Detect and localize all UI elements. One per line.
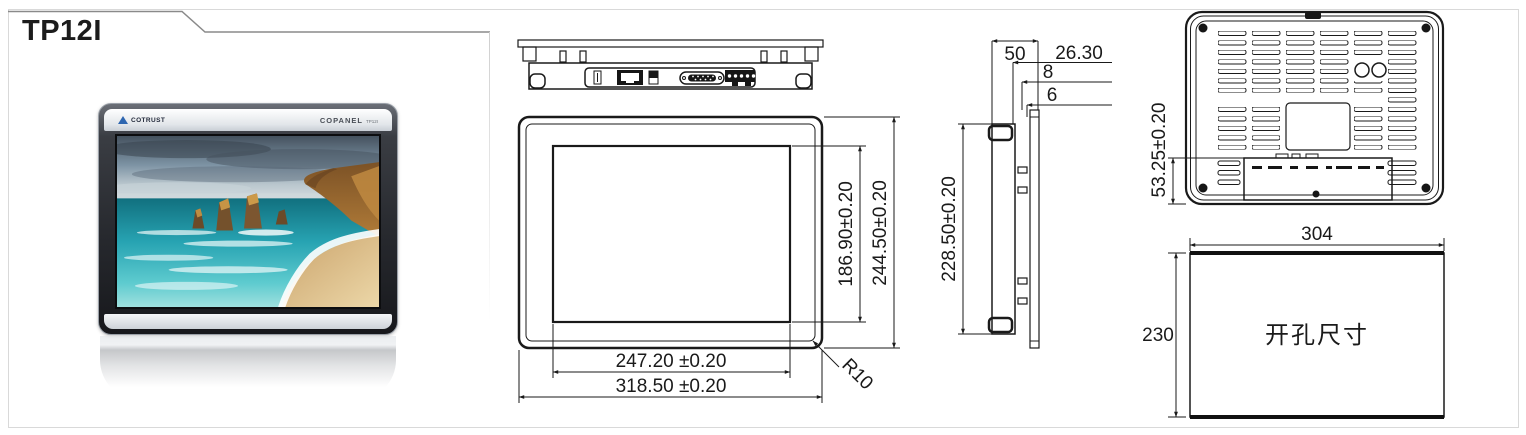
screen-landscape-image [117, 136, 379, 307]
dim-offset-b: 8 [1022, 62, 1112, 110]
brand-logo: COTRUST [118, 116, 165, 124]
cutout-label: 开孔尺寸 [1265, 322, 1369, 349]
model-name: TP12I [366, 119, 378, 124]
svg-text:R10: R10 [837, 355, 876, 394]
product-photo: COTRUST COPANELTP12I [98, 103, 398, 335]
serial-port-icon [680, 72, 724, 84]
dim-screen-width: 247.20 ±0.20 [553, 324, 790, 378]
svg-text:53.25±0.20: 53.25±0.20 [1149, 103, 1170, 198]
svg-text:50: 50 [1004, 44, 1025, 65]
device-bottom-bezel [104, 314, 392, 329]
side-view-drawing: 50 26.30 8 6 228.50±0.20 [930, 30, 1120, 360]
datasheet-page: TP12I COTRUST COPANELTP12I [0, 0, 1526, 435]
corner-screw-icon [1199, 184, 1208, 193]
label-plate [1286, 103, 1350, 150]
svg-text:247.20 ±0.20: 247.20 ±0.20 [616, 351, 727, 372]
dim-side-height: 228.50±0.20 [939, 124, 992, 334]
section-divider [489, 32, 490, 322]
svg-text:26.30: 26.30 [1055, 43, 1103, 64]
brand-name: COTRUST [131, 117, 165, 124]
vent-slots [1218, 31, 1422, 150]
series-label: COPANELTP12I [320, 116, 378, 125]
series-name: COPANEL [320, 116, 363, 125]
dim-cutout-width: 304 [1190, 224, 1444, 251]
brand-triangle-icon [118, 116, 128, 124]
rear-view-drawing: 53.25±0.20 [1140, 0, 1526, 215]
corner-screw-icon [1199, 24, 1208, 33]
dip-switch-icon [649, 71, 658, 84]
dim-cutout-height: 230 [1142, 253, 1186, 417]
device-top-bezel: COTRUST COPANELTP12I [104, 109, 392, 131]
dim-offset-a: 26.30 [1013, 43, 1112, 124]
power-terminal-icon [725, 70, 755, 86]
corner-screw-icon [1422, 24, 1431, 33]
svg-text:304: 304 [1301, 224, 1333, 245]
cutout-drawing: 304 230 开孔尺寸 [1140, 218, 1526, 428]
page-title: TP12I [22, 15, 102, 48]
svg-text:228.50±0.20: 228.50±0.20 [939, 176, 960, 282]
svg-text:230: 230 [1142, 325, 1174, 346]
svg-text:318.50 ±0.20: 318.50 ±0.20 [616, 376, 727, 397]
dim-screen-height: 186.90±0.20 [792, 146, 866, 322]
ethernet-port-icon [617, 70, 643, 85]
dim-corner-radius: R10 [813, 341, 877, 394]
front-view-drawing: 186.90±0.20 244.50±0.20 247.20 ±0.20 318… [505, 100, 915, 415]
top-clip-icon [1305, 12, 1321, 19]
photo-reflection [100, 336, 396, 400]
corner-screw-icon [1422, 184, 1431, 193]
top-view-drawing [505, 28, 840, 98]
device-screen [115, 134, 381, 309]
svg-text:186.90±0.20: 186.90±0.20 [836, 181, 857, 287]
dim-offset-c: 6 [1027, 85, 1112, 117]
svg-text:8: 8 [1043, 62, 1054, 83]
svg-text:6: 6 [1047, 85, 1058, 106]
rear-connector-panel [1244, 154, 1392, 200]
front-screen-outline [553, 146, 790, 322]
svg-text:244.50±0.20: 244.50±0.20 [870, 180, 891, 286]
